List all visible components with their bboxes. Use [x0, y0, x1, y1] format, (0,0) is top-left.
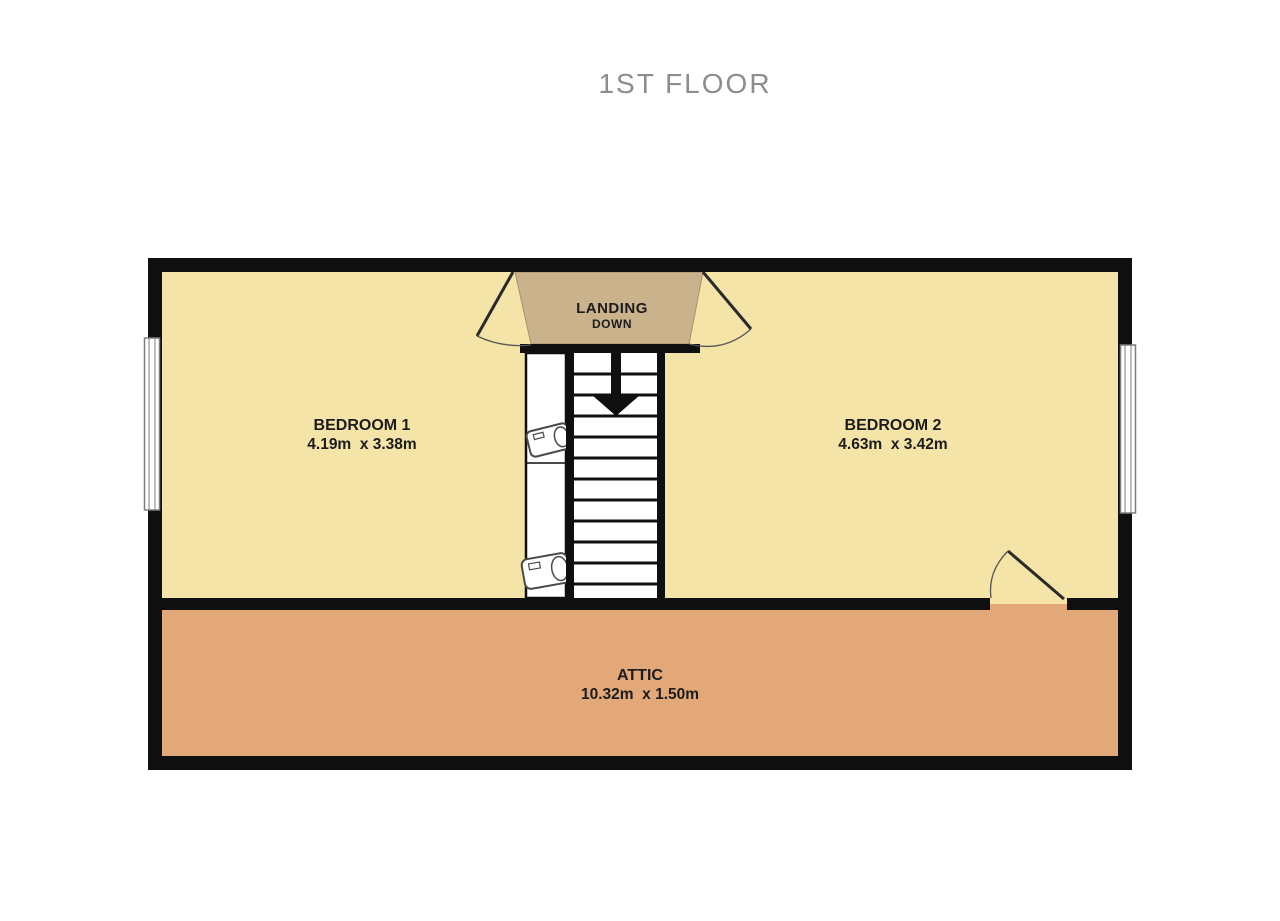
bedroom2-dimensions: 4.63m x 3.42m [768, 435, 1018, 454]
attic-wall-right-segment [1067, 598, 1118, 610]
outer-wall-bottom [148, 756, 1132, 770]
window-left [145, 338, 160, 510]
attic-label: ATTIC 10.32m x 1.50m [515, 666, 765, 704]
landing-bottom-wall [520, 344, 700, 353]
attic-name: ATTIC [515, 666, 765, 685]
landing-name: LANDING [537, 300, 687, 317]
outer-wall-top [148, 258, 1132, 272]
outer-wall-left [148, 258, 162, 770]
floorplan-canvas: 1ST FLOOR [0, 0, 1280, 921]
landing-label: LANDING DOWN [537, 300, 687, 331]
stair-wall-right [657, 353, 665, 598]
bedroom2-label: BEDROOM 2 4.63m x 3.42m [768, 416, 1018, 454]
bedroom1-label: BEDROOM 1 4.19m x 3.38m [237, 416, 487, 454]
window-right [1121, 345, 1136, 513]
attic-dimensions: 10.32m x 1.50m [515, 685, 765, 704]
bedroom1-name: BEDROOM 1 [237, 416, 487, 435]
floorplan-drawing [0, 0, 1280, 921]
outer-wall-right [1118, 258, 1132, 770]
bedroom2-name: BEDROOM 2 [768, 416, 1018, 435]
bedroom1-dimensions: 4.19m x 3.38m [237, 435, 487, 454]
landing-direction: DOWN [537, 317, 687, 331]
attic-wall-left-segment [162, 598, 990, 610]
stair-wall-left [566, 353, 574, 598]
